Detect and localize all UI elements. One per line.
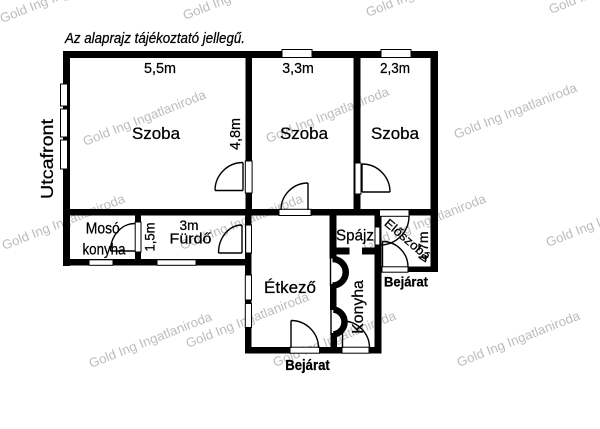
svg-text:Gold Ing Ingatlaniroda: Gold Ing Ingatlaniroda <box>544 188 600 250</box>
svg-text:Gold Ing Ingatlaniroda: Gold Ing Ingatlaniroda <box>452 80 580 142</box>
svg-text:2,3m: 2,3m <box>380 60 410 77</box>
svg-text:Szoba: Szoba <box>132 125 181 143</box>
svg-text:5,5m: 5,5m <box>144 60 176 77</box>
svg-text:3,3m: 3,3m <box>282 60 314 77</box>
svg-text:Bejárat: Bejárat <box>384 274 428 290</box>
svg-text:Bejárat: Bejárat <box>285 358 330 374</box>
svg-text:Gold Ing Ingatlaniroda: Gold Ing Ingatlaniroda <box>181 0 309 23</box>
svg-text:4,8m: 4,8m <box>227 118 244 150</box>
svg-text:Utcafront: Utcafront <box>37 119 57 199</box>
svg-text:Mosó: Mosó <box>86 221 120 238</box>
svg-text:1,5m: 1,5m <box>142 223 158 252</box>
svg-text:Gold Ing Ingatlaniroda: Gold Ing Ingatlaniroda <box>364 0 492 20</box>
svg-text:Az alaprajz tájékoztató jelleg: Az alaprajz tájékoztató jellegű. <box>64 31 245 47</box>
svg-text:Gold Ing Ingatlaniroda: Gold Ing Ingatlaniroda <box>547 0 600 17</box>
svg-text:konyha: konyha <box>83 242 126 259</box>
svg-text:Gold Ing Ingatlaniroda: Gold Ing Ingatlaniroda <box>455 308 583 370</box>
svg-text:Gold Ing Ingatlaniroda: Gold Ing Ingatlaniroda <box>0 0 126 26</box>
svg-text:Szoba: Szoba <box>280 125 329 143</box>
svg-text:Szoba: Szoba <box>371 125 420 143</box>
svg-text:Konyha: Konyha <box>350 280 367 334</box>
svg-text:Étkező: Étkező <box>264 278 316 297</box>
svg-text:Fürdő: Fürdő <box>170 231 212 247</box>
svg-text:Spájz: Spájz <box>336 228 374 245</box>
svg-text:4,7m: 4,7m <box>416 232 431 263</box>
